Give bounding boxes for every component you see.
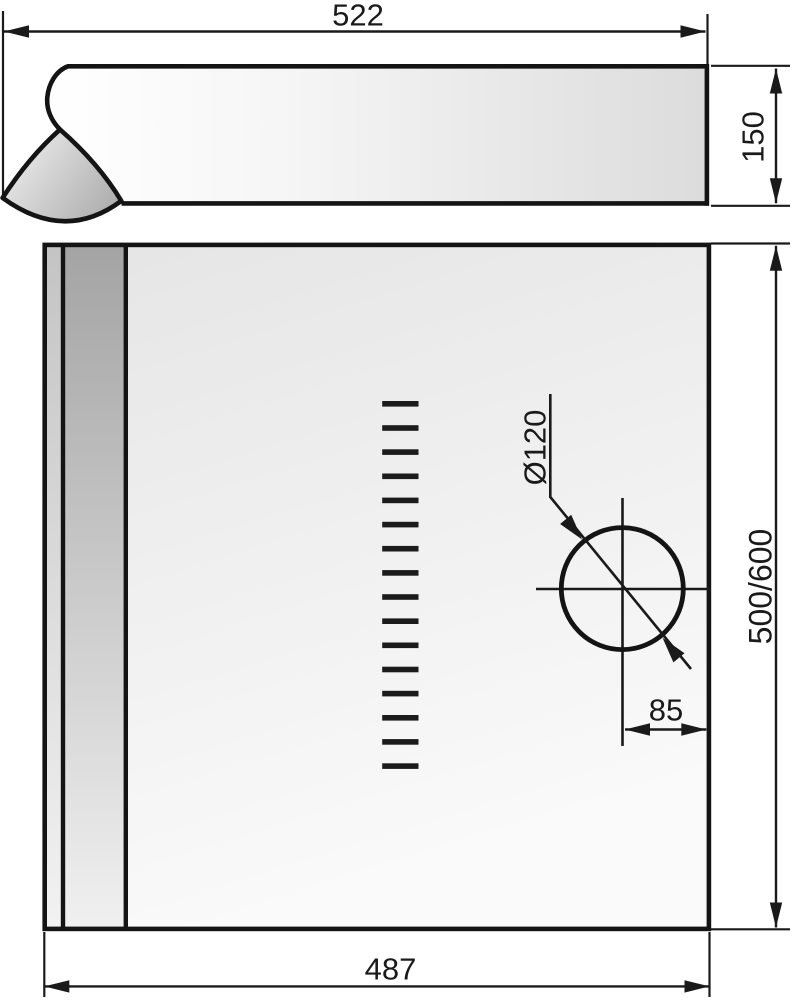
svg-text:487: 487 bbox=[365, 951, 417, 986]
svg-text:500/600: 500/600 bbox=[743, 529, 779, 645]
svg-text:85: 85 bbox=[649, 693, 683, 728]
svg-text:150: 150 bbox=[736, 111, 771, 163]
svg-text:Ø120: Ø120 bbox=[518, 410, 553, 486]
svg-text:522: 522 bbox=[332, 0, 384, 33]
